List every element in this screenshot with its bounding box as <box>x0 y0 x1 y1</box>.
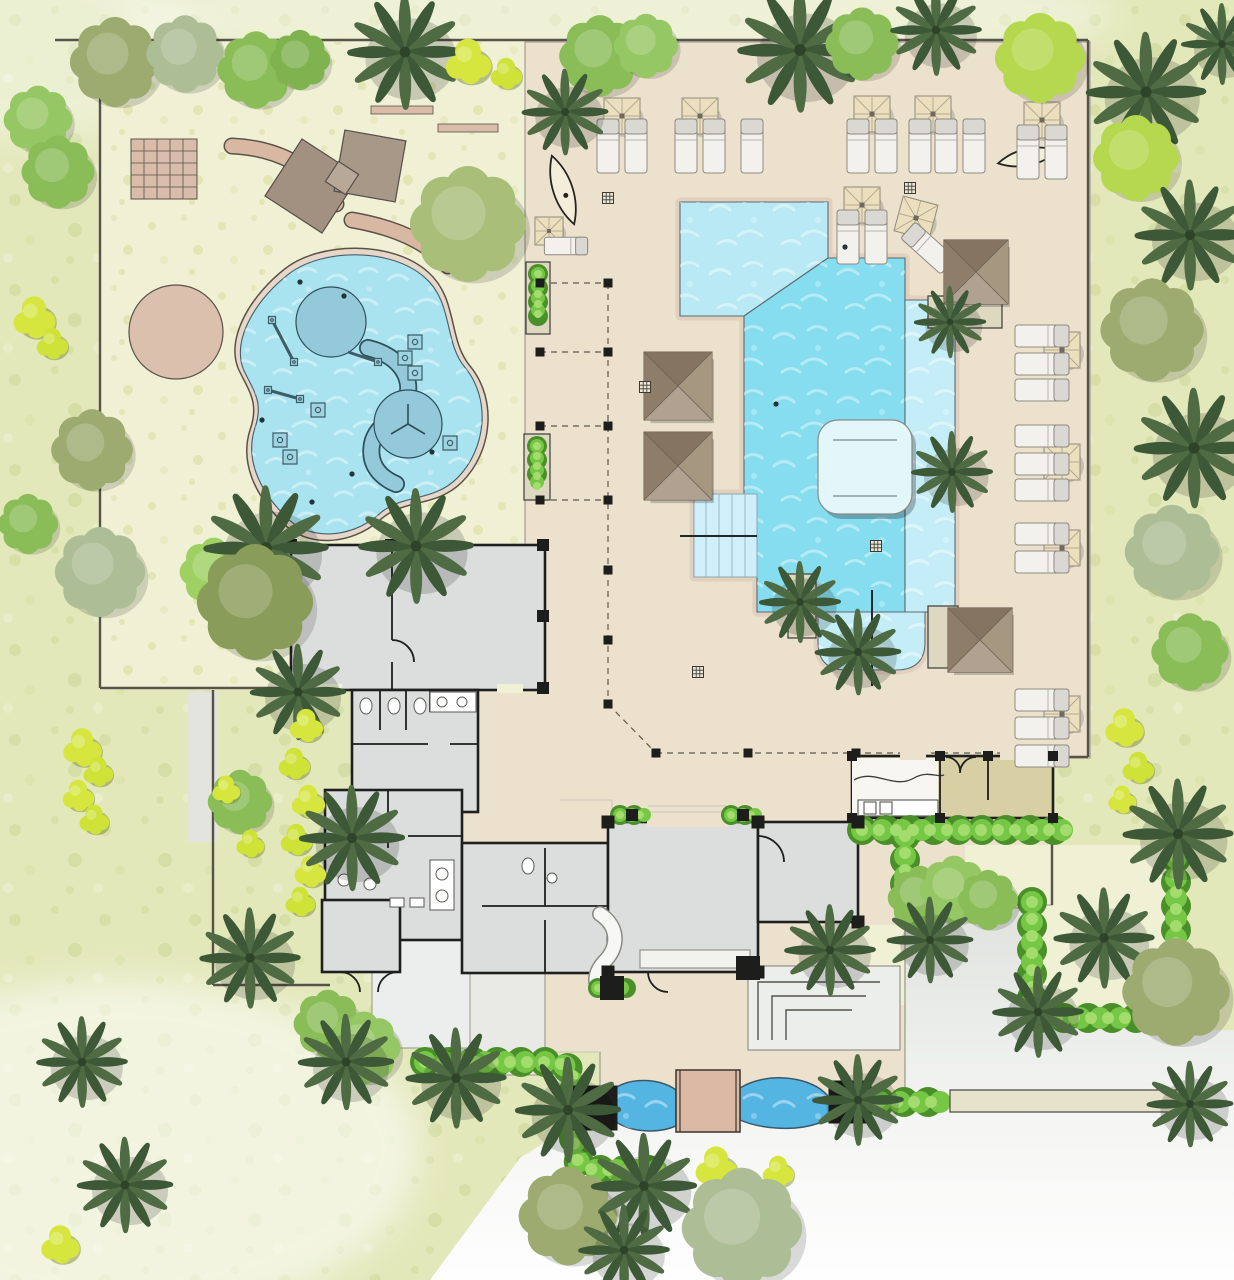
column <box>752 816 765 829</box>
column <box>604 566 613 575</box>
deck-drain <box>693 667 704 678</box>
pool-marker <box>349 471 354 476</box>
deck-drain <box>905 183 916 194</box>
toilet <box>360 698 372 714</box>
lounge-chair <box>1017 125 1039 179</box>
water-jet <box>443 436 457 450</box>
water-jet <box>291 359 298 366</box>
column <box>537 682 549 694</box>
toilet <box>388 698 400 714</box>
water-jet <box>297 396 304 403</box>
lounge-chair <box>1015 717 1069 739</box>
column <box>737 809 749 821</box>
pool-marker <box>309 499 314 504</box>
garden-bench <box>438 124 498 132</box>
deck-drain <box>603 193 614 204</box>
column <box>736 956 760 980</box>
lounge-chair <box>963 119 985 173</box>
column <box>602 816 615 829</box>
deck-drain <box>640 382 651 393</box>
site-plan <box>0 0 1234 1280</box>
toilet <box>414 698 426 714</box>
deck-drain <box>871 541 882 552</box>
pool-marker <box>429 449 434 454</box>
water-jet <box>375 359 382 366</box>
water-jet <box>265 387 272 394</box>
sink <box>390 898 404 907</box>
column <box>604 279 613 288</box>
sand-play-circle <box>129 285 223 379</box>
column <box>652 749 661 758</box>
splash-island <box>296 287 366 357</box>
driveway-east <box>1136 1020 1234 1280</box>
west-suite <box>462 843 608 973</box>
entry-bridge <box>676 1070 740 1132</box>
lounge-chair <box>837 210 859 264</box>
water-jet <box>273 433 287 447</box>
lounge-chair <box>675 119 697 173</box>
lounge-chair <box>1015 379 1069 401</box>
paver-grid <box>131 139 197 199</box>
column <box>536 422 545 431</box>
lounge-chair <box>1015 551 1069 573</box>
lounge-chair <box>625 119 647 173</box>
lounge-chair <box>741 119 763 173</box>
storage-room <box>322 900 400 972</box>
column <box>536 496 545 505</box>
column <box>935 751 945 761</box>
toilet <box>522 858 534 874</box>
column <box>983 751 993 761</box>
water-jet <box>398 351 412 365</box>
water-jet <box>311 403 325 417</box>
column <box>847 751 857 761</box>
column <box>604 496 613 505</box>
cabana <box>644 432 714 503</box>
entry-opening <box>647 818 728 827</box>
column <box>626 809 638 821</box>
column <box>604 636 613 645</box>
lounge-chair <box>865 210 887 264</box>
spa-island <box>818 420 912 514</box>
column <box>604 422 613 431</box>
column <box>1048 751 1058 761</box>
garden-bench <box>371 106 433 114</box>
cabana <box>948 608 1014 675</box>
lounge-chair <box>1015 523 1069 545</box>
pool-marker <box>341 293 346 298</box>
lounge-chair <box>1015 689 1069 711</box>
lounge-chair <box>935 119 957 173</box>
lounge-chair <box>544 237 587 255</box>
column <box>536 279 545 288</box>
water-jet <box>283 450 297 464</box>
site-plan-canvas <box>0 0 1234 1280</box>
water-jet <box>408 335 422 349</box>
cabana <box>644 352 714 423</box>
column <box>600 976 624 1000</box>
column <box>852 916 865 929</box>
lounge-chair <box>1015 745 1069 767</box>
window-opening <box>497 684 523 693</box>
pool-marker <box>842 244 847 249</box>
pool-marker <box>773 401 778 406</box>
lounge-chair <box>1015 353 1069 375</box>
pool-marker <box>259 417 264 422</box>
lounge-chair <box>1015 453 1069 475</box>
column <box>744 749 753 758</box>
window-opening <box>900 752 926 760</box>
lounge-chair <box>1015 425 1069 447</box>
lounge-chair <box>1045 125 1067 179</box>
water-jet <box>408 366 422 380</box>
lounge-chair <box>847 119 869 173</box>
sink <box>547 873 557 883</box>
lounge-chair <box>703 119 725 173</box>
column <box>537 539 549 551</box>
sink <box>410 898 424 907</box>
column <box>935 813 945 823</box>
pond-ripples <box>610 1081 676 1131</box>
column <box>536 348 545 357</box>
column <box>604 348 613 357</box>
lounge-room <box>758 822 858 922</box>
column <box>1048 813 1058 823</box>
lounge-chair <box>1015 479 1069 501</box>
pool-marker <box>297 279 302 284</box>
column <box>537 610 549 622</box>
cabana <box>944 240 1010 307</box>
lounge-chair <box>875 119 897 173</box>
water-jet <box>269 317 276 324</box>
column <box>604 700 613 709</box>
column <box>847 813 857 823</box>
lounge-chair <box>1015 325 1069 347</box>
lounge-chair <box>909 119 931 173</box>
south-walk <box>640 950 750 968</box>
